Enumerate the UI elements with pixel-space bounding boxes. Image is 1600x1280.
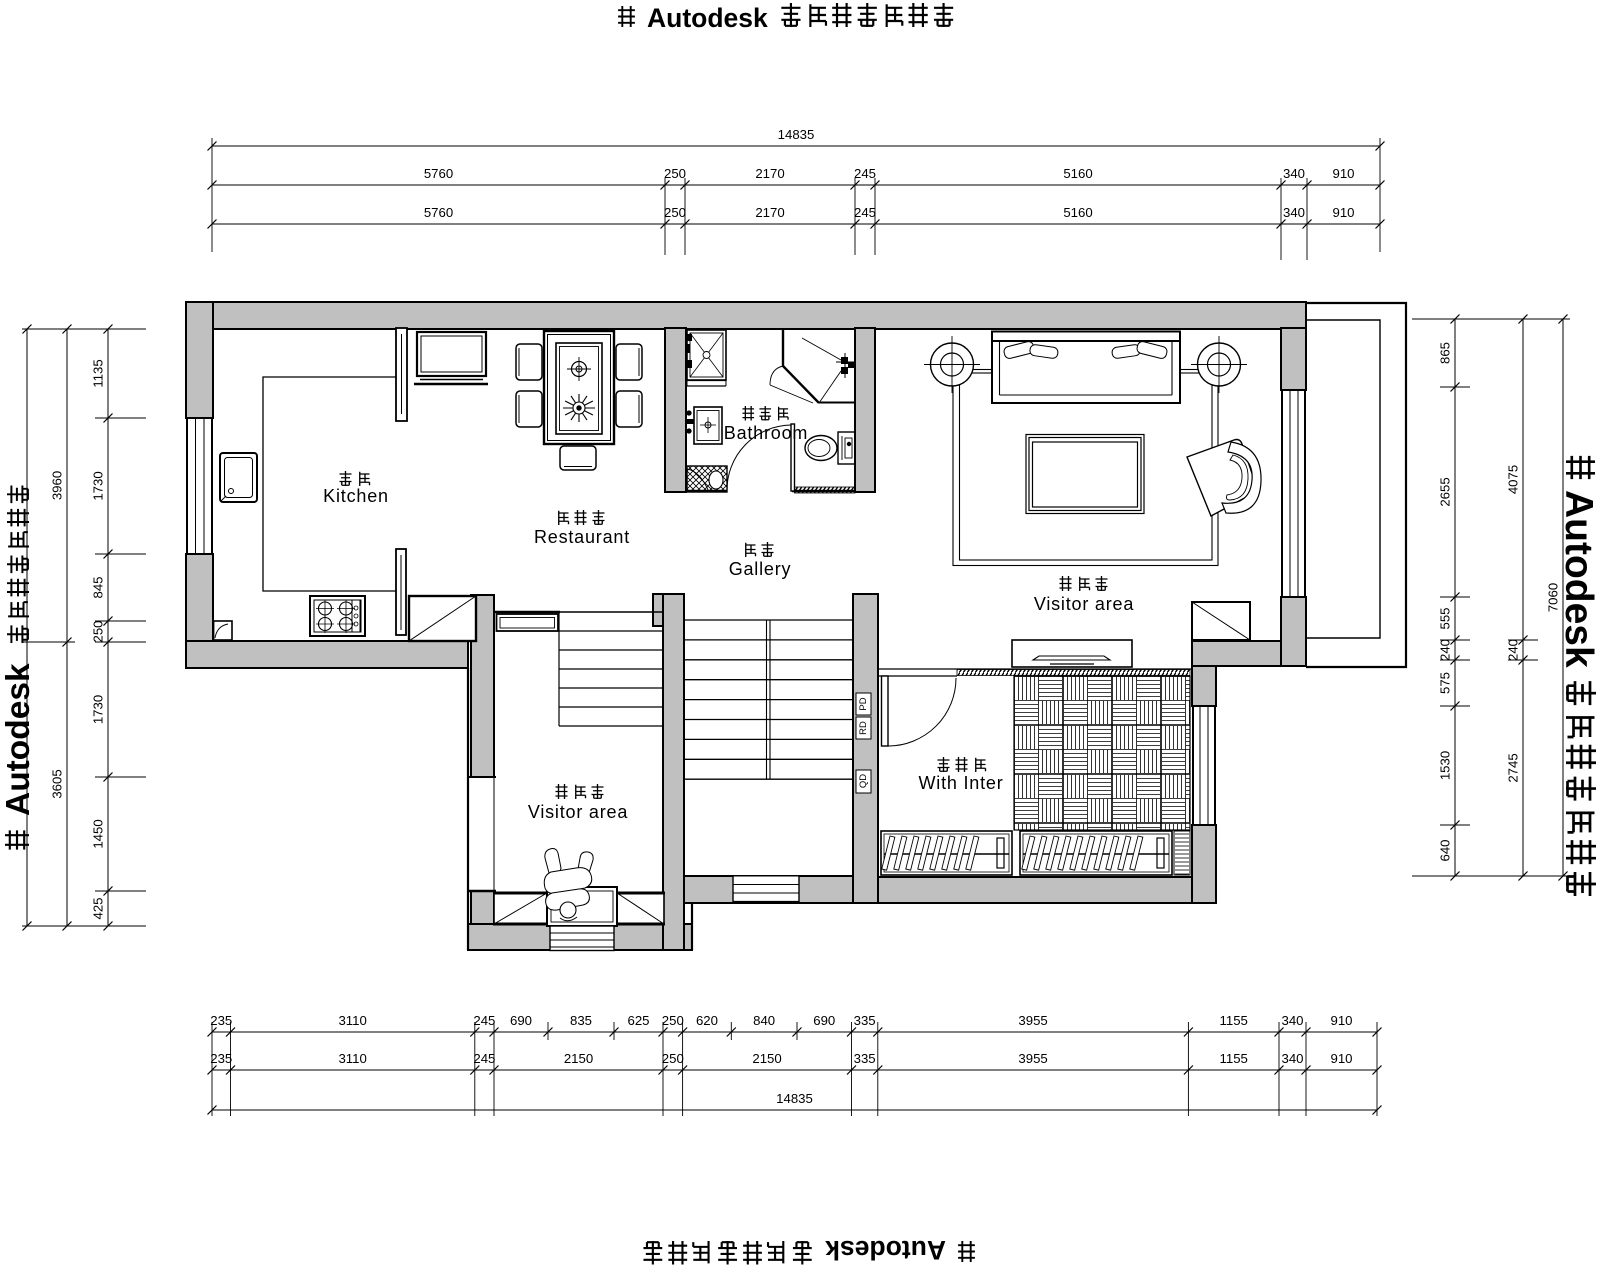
svg-text:QD: QD [858, 774, 869, 788]
svg-text:250: 250 [662, 1051, 684, 1066]
svg-text:690: 690 [510, 1013, 532, 1028]
svg-text:Autodesk: Autodesk [0, 663, 37, 816]
svg-text:Gallery: Gallery [729, 559, 792, 579]
svg-text:235: 235 [210, 1013, 232, 1028]
svg-text:835: 835 [570, 1013, 592, 1028]
svg-text:240: 240 [1438, 639, 1453, 661]
svg-text:910: 910 [1332, 205, 1354, 220]
svg-text:865: 865 [1438, 342, 1453, 364]
svg-text:3110: 3110 [338, 1013, 366, 1028]
svg-text:910: 910 [1332, 166, 1354, 181]
svg-text:1450: 1450 [91, 819, 106, 848]
svg-text:3605: 3605 [50, 769, 65, 798]
svg-text:Visitor area: Visitor area [528, 802, 629, 822]
svg-text:1155: 1155 [1220, 1051, 1248, 1066]
svg-text:2745: 2745 [1506, 753, 1521, 782]
svg-text:14835: 14835 [776, 1091, 813, 1106]
svg-text:235: 235 [210, 1051, 232, 1066]
svg-text:1530: 1530 [1438, 751, 1453, 780]
svg-text:250: 250 [664, 166, 686, 181]
svg-text:245: 245 [854, 205, 876, 220]
svg-text:335: 335 [854, 1051, 876, 1066]
svg-text:3955: 3955 [1018, 1051, 1047, 1066]
svg-text:2170: 2170 [755, 166, 784, 181]
svg-text:Autodesk: Autodesk [825, 1235, 946, 1265]
svg-text:Restaurant: Restaurant [534, 527, 630, 547]
svg-text:625: 625 [627, 1013, 649, 1028]
svg-text:340: 340 [1281, 1051, 1303, 1066]
svg-text:250: 250 [664, 205, 686, 220]
svg-text:1730: 1730 [91, 695, 106, 724]
svg-text:425: 425 [91, 897, 106, 919]
svg-text:840: 840 [753, 1013, 775, 1028]
svg-text:Visitor area: Visitor area [1034, 594, 1135, 614]
svg-text:575: 575 [1438, 672, 1453, 694]
svg-text:5160: 5160 [1063, 166, 1092, 181]
svg-text:245: 245 [473, 1051, 495, 1066]
svg-text:14835: 14835 [778, 127, 815, 142]
svg-text:340: 340 [1283, 205, 1305, 220]
svg-text:3110: 3110 [338, 1051, 366, 1066]
svg-text:Autodesk: Autodesk [647, 3, 768, 33]
svg-text:690: 690 [813, 1013, 835, 1028]
svg-text:4075: 4075 [1506, 465, 1521, 494]
svg-text:PD: PD [858, 697, 869, 710]
svg-text:3960: 3960 [50, 471, 65, 500]
svg-text:Kitchen: Kitchen [323, 486, 389, 506]
svg-text:620: 620 [696, 1013, 718, 1028]
svg-text:555: 555 [1438, 607, 1453, 629]
svg-text:5760: 5760 [424, 166, 453, 181]
svg-text:RD: RD [858, 721, 869, 735]
svg-text:240: 240 [1506, 639, 1521, 661]
svg-text:1135: 1135 [91, 359, 106, 387]
svg-text:910: 910 [1330, 1013, 1352, 1028]
svg-text:250: 250 [91, 620, 106, 642]
svg-text:245: 245 [854, 166, 876, 181]
svg-text:250: 250 [662, 1013, 684, 1028]
svg-text:2655: 2655 [1438, 477, 1453, 506]
svg-text:2150: 2150 [752, 1051, 781, 1066]
svg-text:1730: 1730 [91, 471, 106, 500]
svg-text:335: 335 [854, 1013, 876, 1028]
svg-text:2150: 2150 [564, 1051, 593, 1066]
svg-text:5760: 5760 [424, 205, 453, 220]
svg-text:640: 640 [1438, 839, 1453, 861]
svg-text:245: 245 [473, 1013, 495, 1028]
svg-text:1155: 1155 [1220, 1013, 1248, 1028]
svg-text:5160: 5160 [1063, 205, 1092, 220]
svg-text:Bathroom: Bathroom [724, 423, 808, 443]
svg-text:845: 845 [91, 576, 106, 598]
svg-text:340: 340 [1281, 1013, 1303, 1028]
svg-text:With Inter: With Inter [918, 773, 1003, 793]
svg-text:3955: 3955 [1018, 1013, 1047, 1028]
svg-text:7060: 7060 [1546, 583, 1561, 612]
svg-text:2170: 2170 [755, 205, 784, 220]
svg-text:910: 910 [1330, 1051, 1352, 1066]
svg-text:340: 340 [1283, 166, 1305, 181]
